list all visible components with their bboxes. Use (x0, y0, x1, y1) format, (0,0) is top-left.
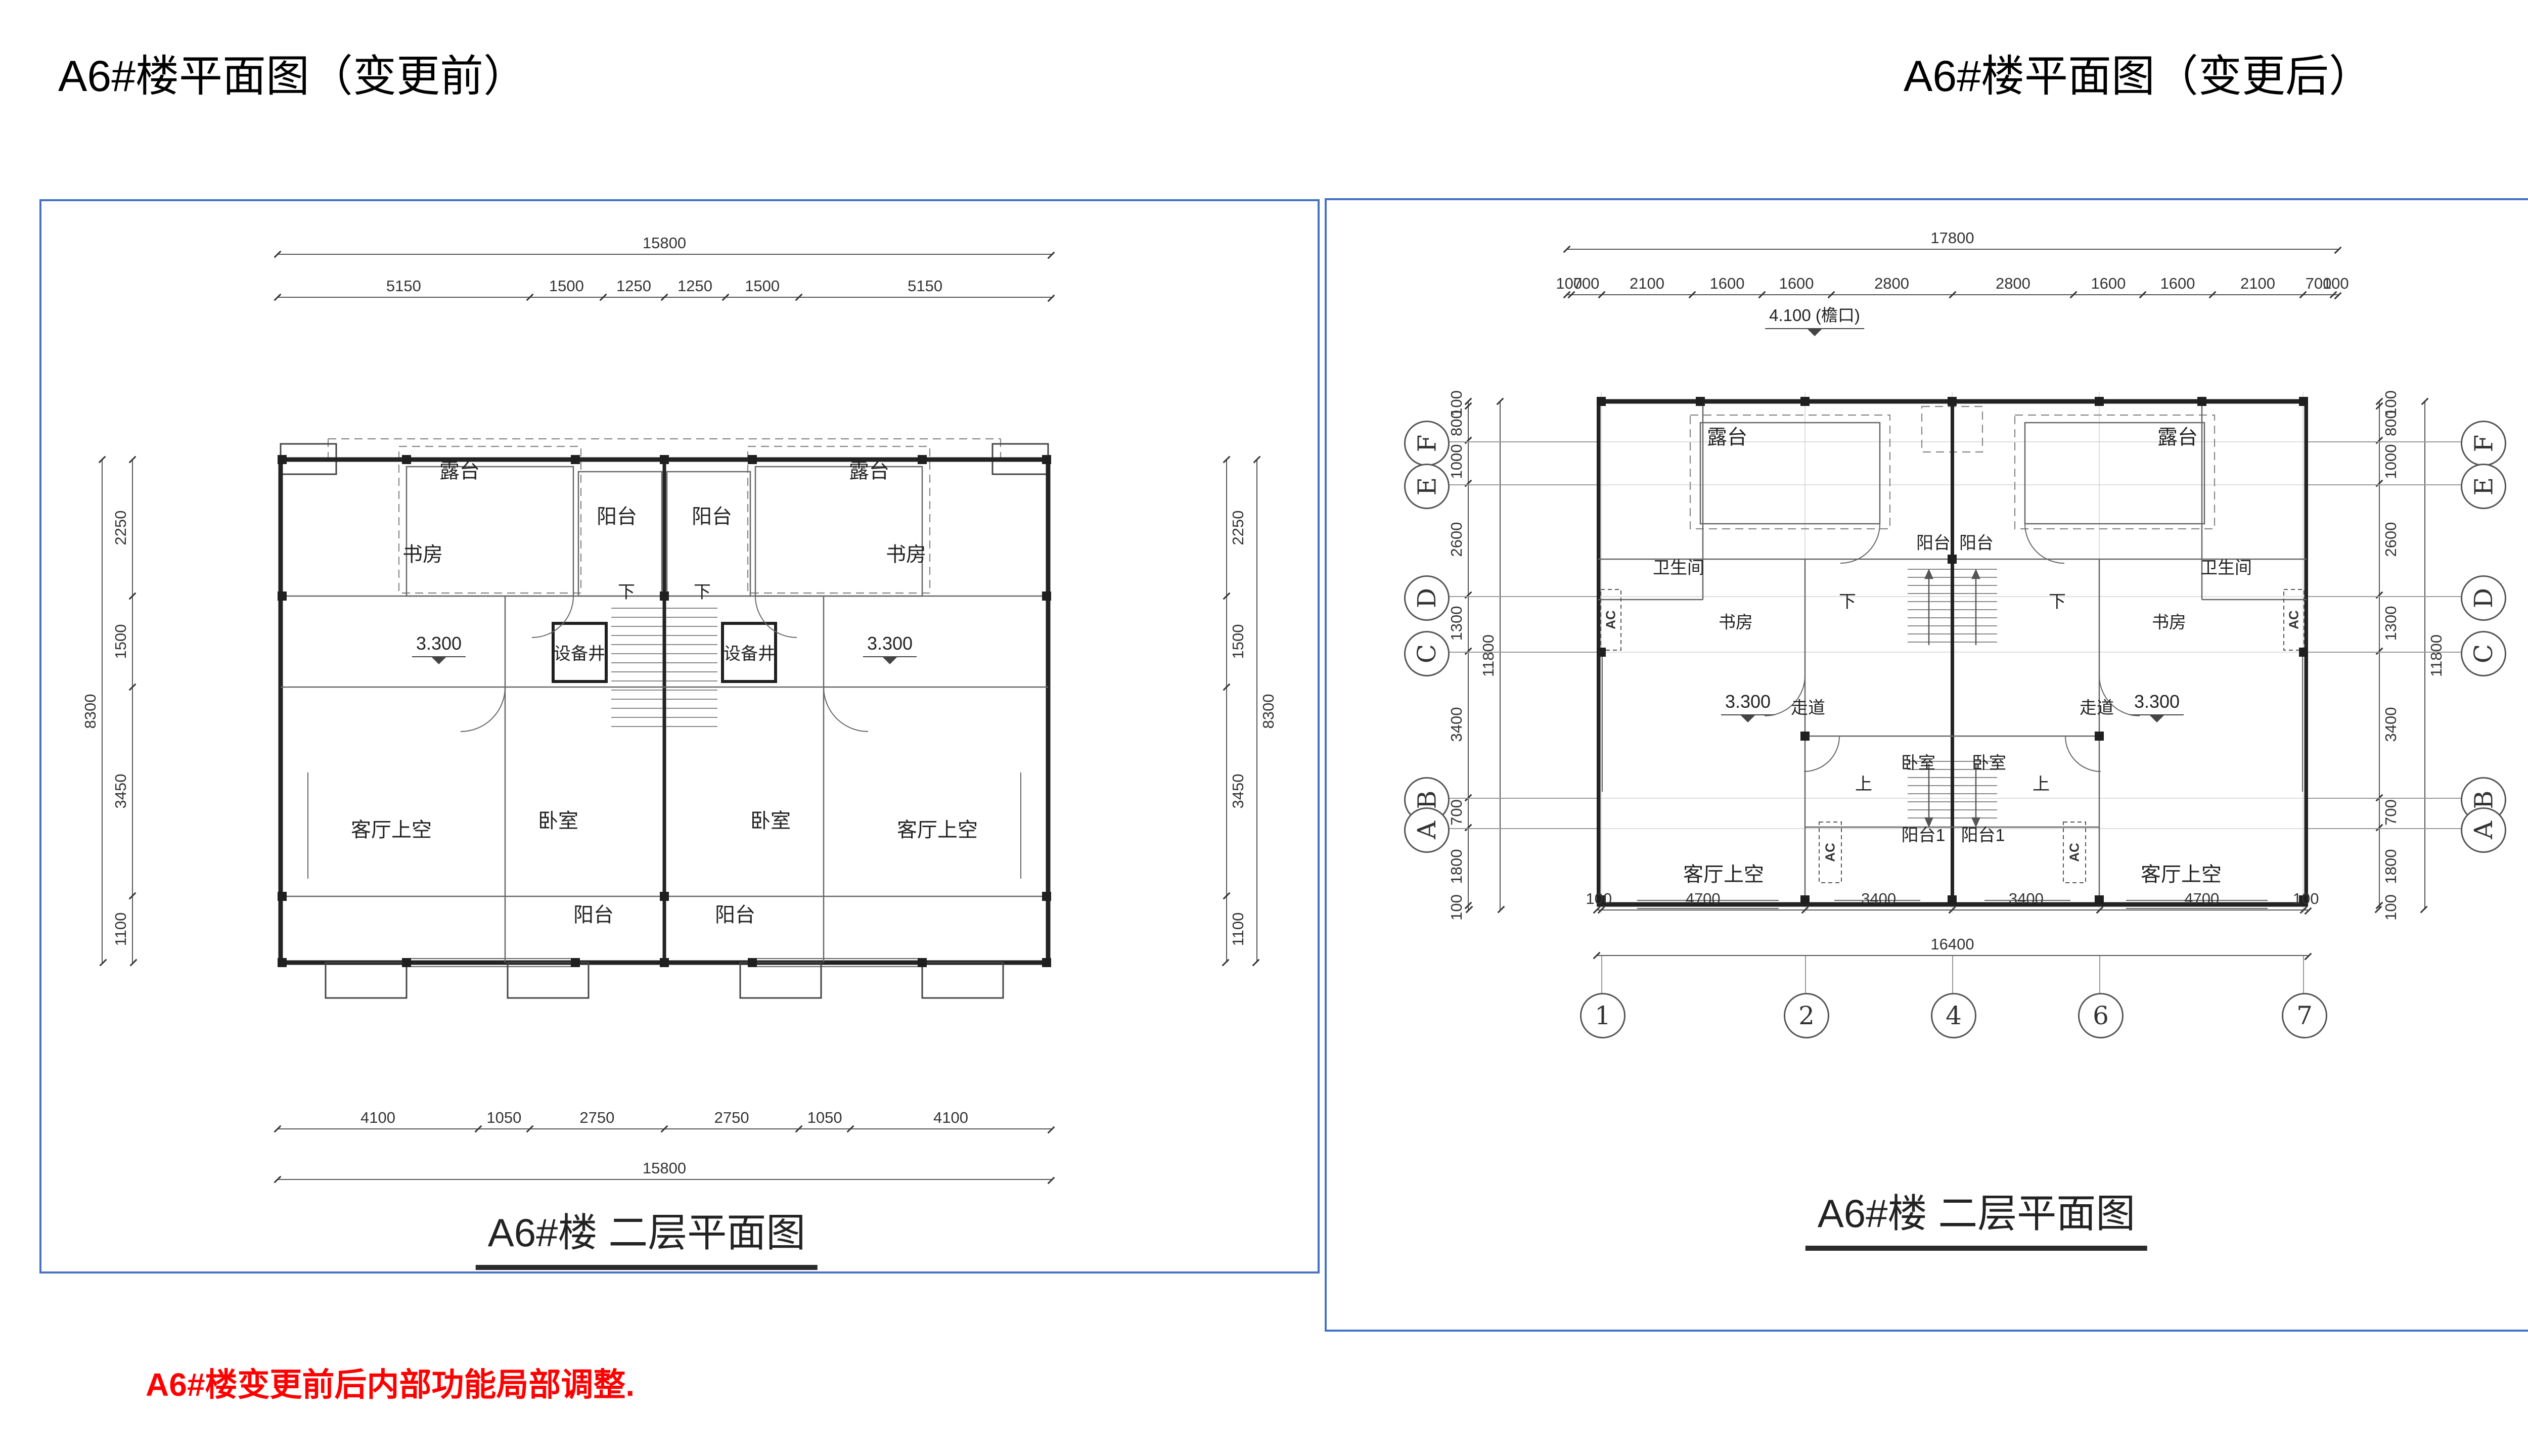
dim-segment: 100 (1446, 905, 1469, 910)
dim-segment: 1500 (110, 596, 133, 687)
room-label-study-left: 书房 (1719, 609, 1753, 633)
dim-segment: 1250 (664, 275, 726, 298)
axis-leader (2099, 956, 2100, 996)
dim-segment: 3450 (110, 687, 133, 896)
dim-row-top-overall: 15800 (278, 232, 1051, 255)
dim-segment: 1300 (2379, 595, 2402, 651)
ac-unit-label: AC (1823, 843, 1838, 862)
grid-bubble-letter-a-left: A (1404, 807, 1450, 853)
dim-segment: 4700 (1601, 887, 1805, 911)
dim-segment: 1000 (2379, 440, 2402, 483)
axis-leader (1447, 798, 1597, 799)
dim-segment: 1800 (2379, 828, 2402, 905)
dim-segment: 11800 (1477, 401, 1501, 909)
dim-segment: 1600 (1762, 272, 1831, 295)
room-label-terrace-left: 露台 (439, 454, 480, 484)
grid-bubble-letter-f-right: F (2461, 421, 2506, 466)
room-label-terrace-right: 露台 (2157, 421, 2198, 450)
dim-segment: 1100 (1226, 896, 1249, 963)
room-label-living-void-right: 客厅上空 (897, 813, 978, 843)
grid-bubble-number-4: 4 (1931, 993, 1976, 1038)
axis-leader (2308, 484, 2461, 485)
dim-row-top-segments: 1007002100160016002800280016001600210070… (1567, 272, 2338, 295)
room-label-living-void-right: 客厅上空 (2141, 858, 2222, 887)
stair-up-label-left: 上 (1855, 770, 1872, 795)
axis-leader (2308, 798, 2461, 799)
dim-segment: 2750 (664, 1106, 799, 1129)
room-label-corridor-right: 走道 (2080, 694, 2114, 719)
level-marker-left: 3.300 (1721, 691, 1775, 715)
grid-bubble-letter-f-left: F (1404, 421, 1450, 466)
dim-segment: 2250 (110, 460, 133, 596)
dim-segment: 2800 (1953, 272, 2074, 295)
plan-panel-after: 17800 1007002100160016002800280016001600… (1325, 198, 2528, 1332)
room-label-balcony1-right: 阳台1 (1961, 822, 2005, 846)
ac-unit-label: AC (1603, 610, 1619, 629)
dim-row-bottom-overall: 15800 (278, 1157, 1051, 1180)
dim-segment: 100 (1446, 401, 1469, 406)
room-label-balcony-bottom-right: 阳台 (715, 898, 755, 928)
grid-bubble-letter-a-right: A (2461, 807, 2506, 853)
dim-segment: 5150 (799, 275, 1051, 298)
floor-plan-drawing-after (1597, 392, 2308, 913)
ac-unit-label: AC (2286, 610, 2302, 629)
axis-leader (2308, 441, 2461, 442)
dim-segment: 3400 (1805, 887, 1953, 911)
room-label-terrace-left: 露台 (1707, 421, 1747, 450)
axis-leader (2308, 596, 2461, 597)
dim-segment: 1500 (726, 275, 799, 298)
dim-segment: 100 (2379, 905, 2402, 910)
dim-segment: 16400 (1597, 933, 2308, 956)
page-title-before: A6#楼平面图（变更前） (58, 40, 527, 104)
axis-leader (1447, 828, 1597, 829)
dim-segment: 2750 (530, 1106, 664, 1129)
dim-segment: 8300 (79, 460, 103, 963)
room-label-balcony-top-right: 阳台 (692, 500, 732, 529)
axis-leader (2303, 956, 2304, 996)
dim-segment: 2100 (2213, 272, 2304, 295)
stair-up-label-right: 上 (2033, 770, 2050, 795)
grid-bubble-letter-c-left: C (1404, 631, 1450, 676)
plan-caption-after: A6#楼 二层平面图 (1805, 1182, 2147, 1251)
dim-segment: 700 (2379, 798, 2402, 828)
dim-segment: 1600 (2143, 272, 2212, 295)
grid-bubble-number-1: 1 (1580, 993, 1626, 1038)
dim-row-bottom-segments: 410010502750275010504100 (278, 1106, 1051, 1129)
grid-bubble-letter-e-right: E (2461, 464, 2506, 509)
room-label-balcony-top-left: 阳台 (597, 500, 637, 529)
room-label-bath-left: 卫生间 (1653, 554, 1704, 579)
axis-leader (2308, 652, 2461, 653)
dim-segment: 700 (1571, 272, 1602, 295)
grid-bubble-letter-e-left: E (1404, 464, 1450, 509)
room-label-living-void-left: 客厅上空 (351, 813, 432, 843)
dim-segment: 1600 (2073, 272, 2143, 295)
room-label-terrace-right: 露台 (849, 454, 889, 484)
room-label-corridor-left: 走道 (1791, 694, 1825, 719)
dim-segment: 2250 (1226, 460, 1249, 596)
dim-segment: 3400 (2379, 651, 2402, 798)
dim-segment: 2100 (1602, 272, 1693, 295)
grid-bubble-number-7: 7 (2282, 993, 2327, 1038)
page-title-after: A6#楼平面图（变更后） (1904, 40, 2372, 104)
dim-segment: 1100 (110, 896, 133, 963)
dim-segment: 100 (2333, 272, 2338, 295)
room-label-balcony-top-right: 阳台 (1959, 529, 1994, 554)
stair-down-label-right: 下 (2049, 588, 2066, 613)
dim-col-right-overall: 8300 (1256, 460, 1280, 963)
level-marker-right: 3.300 (2130, 691, 2184, 715)
level-marker-left: 3.300 (412, 633, 466, 657)
room-label-balcony-bottom-left: 阳台 (573, 898, 614, 928)
dim-col-right-segments: 2250150034501100 (1226, 460, 1249, 963)
plan-caption-before: A6#楼 二层平面图 (476, 1201, 818, 1270)
axis-leader (1447, 652, 1597, 653)
dim-col-left-segments: 2250150034501100 (110, 460, 133, 963)
dim-col-left-overall: 11800 (1477, 401, 1501, 909)
room-label-study-right: 书房 (886, 538, 926, 567)
dim-segment: 3400 (1446, 651, 1469, 798)
dim-col-right-segments: 10080010002600130034007001800100 (2379, 401, 2402, 909)
room-label-balcony1-left: 阳台1 (1902, 822, 1946, 846)
dim-segment: 800 (2379, 406, 2402, 440)
stair-down-label-right: 下 (694, 578, 711, 603)
room-label-living-void-left: 客厅上空 (1683, 858, 1764, 887)
grid-bubble-letter-d-right: D (2461, 575, 2506, 621)
room-label-bedroom-right: 卧室 (750, 804, 791, 834)
dim-segment: 1300 (1446, 595, 1469, 651)
stair-down-label-left: 下 (1839, 588, 1856, 613)
dim-col-left-overall: 8300 (79, 460, 103, 963)
axis-leader (1601, 956, 1602, 996)
dim-row-bottom-overall: 16400 (1597, 933, 2308, 956)
dim-segment: 2600 (1446, 483, 1469, 595)
axis-leader (1447, 596, 1597, 597)
axis-leader (1447, 484, 1597, 485)
dim-segment: 1800 (1446, 828, 1469, 905)
dim-segment: 4100 (850, 1106, 1051, 1129)
dim-row-top-segments: 515015001250125015005150 (278, 275, 1051, 298)
dim-segment: 100 (2304, 887, 2308, 911)
ac-unit-label: AC (2067, 843, 2083, 862)
room-label-bath-right: 卫生间 (2200, 554, 2252, 579)
dim-segment: 4700 (2100, 887, 2304, 911)
dim-segment: 2800 (1831, 272, 1953, 295)
room-label-shaft-right: 设备井 (724, 640, 775, 665)
dim-segment: 100 (1567, 272, 1571, 295)
axis-leader (1805, 956, 1806, 996)
dim-segment: 100 (1597, 887, 1601, 911)
dim-segment: 5150 (278, 275, 530, 298)
dim-segment: 15800 (278, 232, 1051, 255)
dim-segment: 3450 (1226, 687, 1249, 896)
plan-panel-before: 15800 515015001250125015005150 8300 2250… (39, 199, 1320, 1273)
dim-segment: 1250 (603, 275, 664, 298)
dim-segment: 11800 (2424, 401, 2448, 909)
level-marker-right: 3.300 (863, 633, 917, 657)
grid-bubble-number-6: 6 (2078, 993, 2124, 1038)
axis-leader (2308, 828, 2461, 829)
grid-bubble-letter-c-right: C (2461, 631, 2506, 676)
room-label-bedroom-left: 卧室 (1901, 749, 1935, 774)
dim-row-bottom-segments: 1004700340034004700100 (1597, 887, 2308, 911)
room-label-shaft-left: 设备井 (554, 640, 605, 665)
dim-segment: 1050 (799, 1106, 850, 1129)
dim-segment: 2600 (2379, 483, 2402, 595)
dim-segment: 4100 (278, 1106, 478, 1129)
room-label-study-right: 书房 (2152, 609, 2186, 633)
dim-segment: 3400 (1952, 887, 2100, 911)
stair-down-label-left: 下 (618, 578, 635, 603)
axis-leader (1952, 956, 1953, 996)
floor-plan-drawing-before (278, 424, 1051, 1010)
dim-segment: 1600 (1692, 272, 1762, 295)
axis-leader (1447, 441, 1597, 442)
room-label-bedroom-right: 卧室 (1972, 749, 2006, 774)
dim-segment: 1050 (478, 1106, 530, 1129)
room-label-study-left: 书房 (402, 538, 443, 567)
dim-segment: 17800 (1567, 226, 2338, 250)
room-label-bedroom-left: 卧室 (538, 804, 578, 834)
grid-bubble-number-2: 2 (1784, 993, 1829, 1038)
dim-segment: 8300 (1256, 460, 1280, 963)
dim-segment: 1500 (1226, 596, 1249, 687)
dim-segment: 800 (1446, 406, 1469, 440)
dim-segment: 15800 (278, 1157, 1051, 1180)
dim-row-top-overall: 17800 (1567, 226, 2338, 250)
grid-bubble-letter-d-left: D (1404, 575, 1450, 621)
dim-segment: 1500 (530, 275, 603, 298)
change-note: A6#楼变更前后内部功能局部调整. (146, 1359, 635, 1405)
room-label-balcony-top-left: 阳台 (1916, 529, 1951, 554)
eave-level-note: 4.100 (檐口) (1765, 302, 1864, 329)
dim-col-right-overall: 11800 (2424, 401, 2448, 909)
